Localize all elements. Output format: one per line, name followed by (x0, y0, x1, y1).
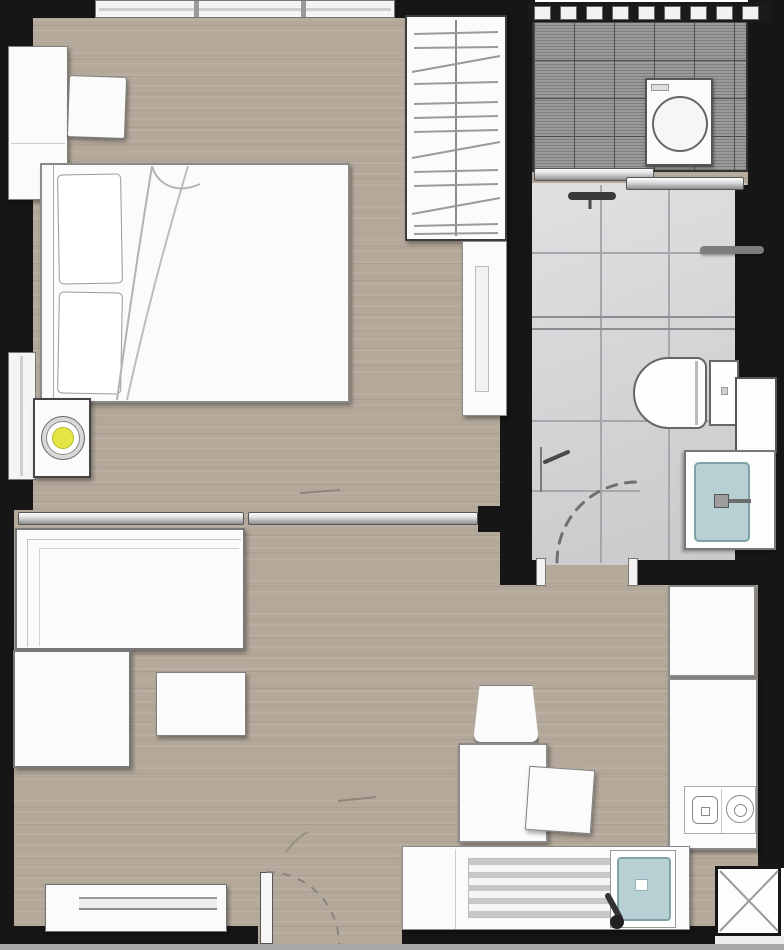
two-burner-cooktop (684, 786, 756, 834)
kitchen-sink (610, 850, 676, 928)
dresser-handle (475, 266, 489, 392)
side-window (8, 352, 36, 480)
window-strip (95, 0, 395, 18)
wall-niche (735, 377, 777, 453)
tv-set (79, 897, 217, 910)
burner-ring-center (734, 804, 747, 817)
headboard-line (53, 165, 54, 401)
side-table (525, 766, 595, 834)
bath-door-post (628, 558, 638, 586)
coffee-table (156, 672, 246, 736)
round-lamp-bulb-icon (52, 427, 74, 449)
stool (67, 75, 127, 139)
wall-right-lower (758, 577, 784, 868)
entrance-door-leaf (260, 872, 273, 944)
wardrobe-with-hangers (405, 15, 507, 241)
wall-top-left (0, 0, 100, 18)
bath-door-post (536, 558, 546, 586)
towel-bar (700, 246, 764, 254)
washing-machine-drum (652, 96, 708, 152)
railing-post (534, 6, 551, 20)
railing-post (716, 6, 733, 20)
kitchen-sink-drain (635, 879, 648, 891)
side-window-line (20, 356, 23, 476)
rain-shower-head (568, 192, 616, 200)
tv-console (45, 884, 227, 932)
bath-grout-line (518, 490, 640, 492)
cooktop-divider (721, 789, 722, 833)
wall-right-top (748, 0, 784, 188)
double-bed (40, 163, 350, 403)
balcony-sliding-door-leaf (626, 177, 744, 190)
window-glass-line (99, 8, 391, 11)
partition-track-right (248, 512, 478, 525)
railing-post (586, 6, 603, 20)
vanity (684, 450, 776, 550)
railing-post (638, 6, 655, 20)
ottoman (13, 650, 131, 768)
vanity-faucet-handle (729, 499, 751, 503)
outside-corridor (0, 944, 784, 950)
sofa (15, 528, 245, 650)
sofa-seat-line (39, 548, 239, 646)
nightstand-seam (11, 143, 65, 144)
railing-post (690, 6, 707, 20)
toilet-flush-button (721, 387, 728, 395)
railing-post (664, 6, 681, 20)
railing-post (612, 6, 629, 20)
toilet-seat-line (695, 361, 698, 425)
fridge-cabinet (668, 585, 756, 677)
railing-post (742, 6, 759, 20)
pillow (57, 173, 123, 284)
partition-end-post (478, 506, 502, 532)
lamp-table (33, 398, 91, 478)
window-mullion (194, 1, 199, 17)
counter-seam (455, 849, 456, 929)
toilet (633, 357, 741, 429)
burner-square-center (701, 807, 710, 816)
shower-screen (520, 316, 745, 330)
service-shaft-box (715, 866, 781, 936)
balcony-railing (528, 2, 772, 22)
desk-chair (473, 685, 539, 743)
pillow (57, 291, 123, 394)
dresser-cabinet (462, 241, 507, 416)
partition-track-left (18, 512, 244, 525)
vanity-faucet (714, 494, 729, 508)
bath-grout-line (600, 185, 602, 563)
shaft-lower-white (715, 936, 784, 944)
balcony-floor (532, 20, 748, 172)
floor-plan (0, 0, 784, 950)
drainer (468, 858, 612, 918)
wall-bath-bottom-right (635, 560, 784, 585)
washing-machine (645, 78, 713, 166)
window-mullion (301, 1, 306, 17)
railing-post (560, 6, 577, 20)
washing-machine-tray (651, 84, 669, 91)
wall-left-lower (0, 510, 14, 944)
